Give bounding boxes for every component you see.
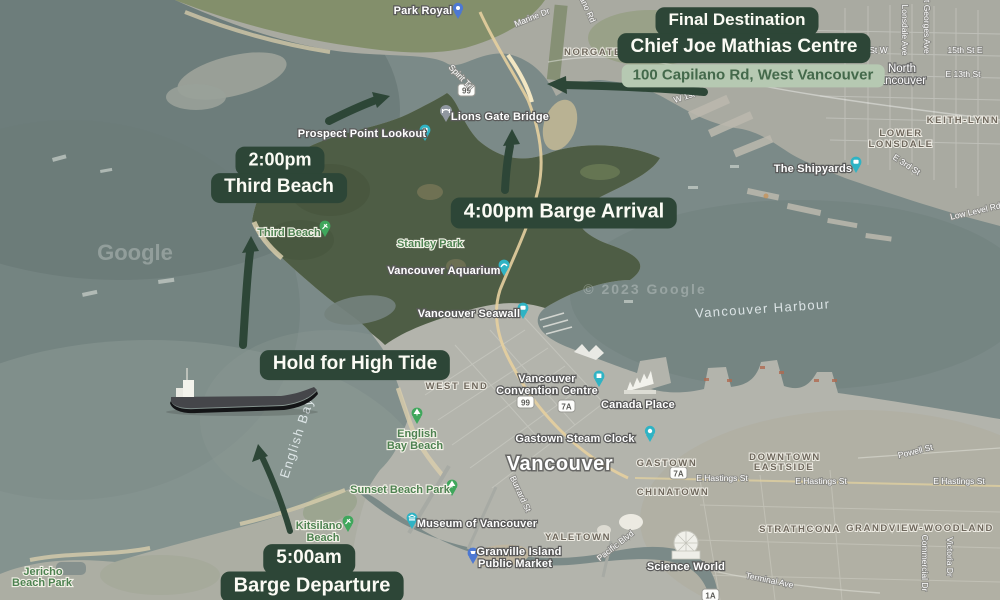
svg-text:99: 99 [521, 399, 530, 408]
poi-stanley-park: Stanley Park [397, 238, 464, 250]
area-lower-lonsdale: LOWER [879, 128, 922, 139]
area-grandview-woodland: GRANDVIEW-WOODLAND [846, 523, 994, 534]
street-lonsdale: Lonsdale Ave [900, 5, 910, 56]
poi-lions-gate: Lions Gate Bridge [451, 111, 549, 123]
poi-convention-centre: Convention Centre [496, 385, 598, 397]
barge-arrival-label: 4:00pm Barge Arrival [451, 198, 677, 229]
poi-third-beach: Third Beach [257, 227, 321, 239]
street-victoria: Victoria Dr [945, 537, 955, 577]
svg-text:1A: 1A [705, 592, 715, 600]
barge-departure-name: Barge Departure [221, 572, 404, 600]
area-norgate: NORGATE [564, 47, 622, 58]
final-destination-address: 100 Capilano Rd, West Vancouver [622, 64, 885, 87]
hold-high-tide-label: Hold for High Tide [260, 350, 450, 380]
barge-departure-time: 5:00am [263, 544, 355, 574]
area-strathcona: STRATHCONA [759, 524, 841, 535]
city-vancouver: Vancouver [507, 453, 614, 475]
area-keith-lynn: KEITH-LYNN [927, 115, 1000, 126]
poi-english-bay-beach: English [397, 428, 437, 440]
svg-text:7A: 7A [561, 403, 571, 412]
svg-text:7A: 7A [673, 470, 683, 479]
poi-prospect-point: Prospect Point Lookout [298, 128, 427, 140]
poi-jericho: Beach Park [12, 577, 73, 589]
area-gastown: GASTOWN [637, 458, 698, 469]
poi-kitsilano-beach: Kitsilano [296, 520, 343, 532]
stop-third-beach-time: 2:00pm [235, 147, 324, 176]
street-hastings: E Hastings St [933, 476, 985, 486]
street-e-13th: E 13th St [946, 69, 982, 79]
street-hastings: E Hastings St [795, 476, 847, 486]
poi-canada-place: Canada Place [601, 399, 675, 411]
street-commercial: Commercial Dr [920, 535, 930, 592]
poi-sunset-beach: Sunset Beach Park [350, 484, 451, 496]
arrow-to-lions-gate [505, 146, 510, 190]
street-st-georges: St Georges Ave [922, 0, 932, 54]
google-watermark: Google [97, 240, 173, 265]
poi-aquarium: Vancouver Aquarium [387, 265, 500, 277]
satellite-map: Google © 2023 Google 99 99 7A 7A 1A [0, 0, 1000, 600]
street-hastings: E Hastings St [696, 473, 748, 483]
street-15th-e: 15th St E [948, 45, 983, 55]
poi-granville-market: Public Market [478, 558, 552, 570]
final-destination-name: Chief Joe Mathias Centre [618, 33, 871, 63]
poi-science-world: Science World [647, 561, 725, 573]
area-chinatown: CHINATOWN [637, 487, 710, 498]
poi-kitsilano-beach: Beach [306, 532, 339, 544]
poi-shipyards: The Shipyards [774, 163, 852, 175]
poi-steam-clock: Gastown Steam Clock [515, 433, 635, 445]
area-lower-lonsdale: LONSDALE [868, 139, 933, 150]
highway-shield-99: 99 [517, 396, 534, 408]
poi-english-bay-beach: Bay Beach [387, 440, 444, 452]
barge-route-map: Google © 2023 Google 99 99 7A 7A 1A [0, 0, 1000, 600]
poi-seawall: Vancouver Seawall [418, 308, 520, 320]
copyright-watermark: © 2023 Google [583, 281, 706, 297]
poi-granville-market: Granville Island [476, 546, 561, 558]
area-west-end: WEST END [426, 381, 489, 392]
highway-shield-1a: 1A [702, 589, 719, 600]
final-destination-title: Final Destination [656, 7, 819, 35]
area-downtown-eastside: EASTSIDE [754, 462, 814, 473]
barge-superstructure [183, 380, 194, 397]
barge-superstructure [176, 388, 184, 397]
poi-park-royal: Park Royal [394, 5, 453, 17]
stop-third-beach-name: Third Beach [211, 173, 347, 203]
highway-shield-7a: 7A [558, 400, 575, 412]
locality-north-vancouver: North [888, 63, 916, 75]
poi-museum: Museum of Vancouver [417, 518, 538, 530]
poi-convention-centre: Vancouver [518, 373, 576, 385]
area-yaletown: YALETOWN [545, 532, 611, 543]
